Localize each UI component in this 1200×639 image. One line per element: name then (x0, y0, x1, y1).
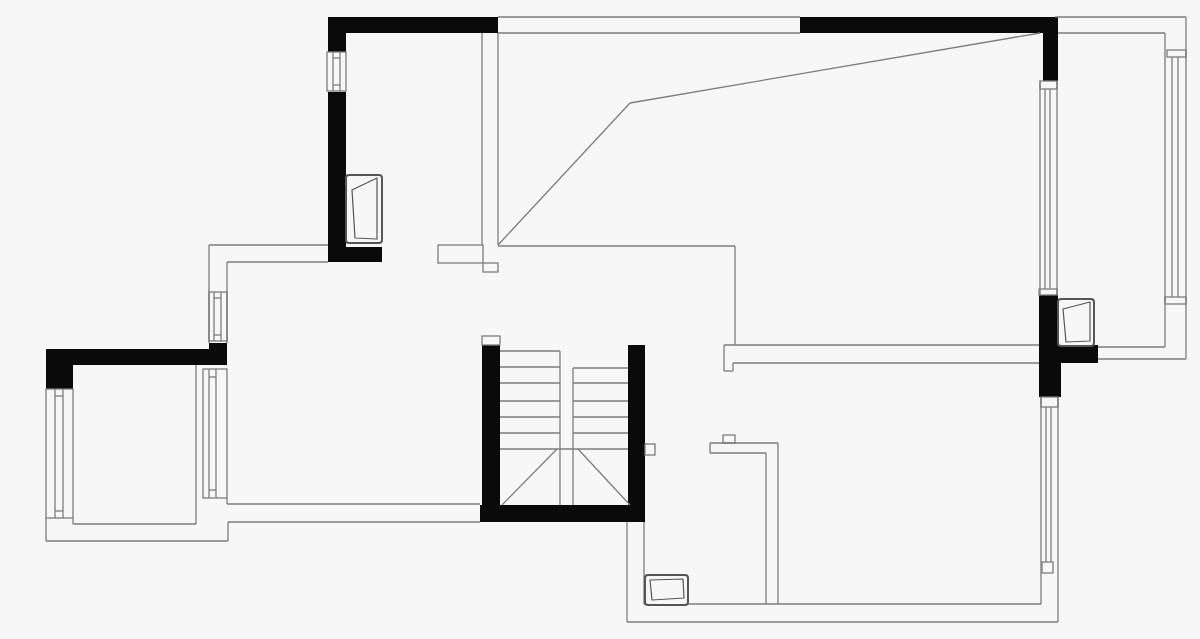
wall-segment (46, 365, 73, 389)
door-panel (1058, 299, 1094, 346)
wall-segment (328, 33, 346, 52)
floor-plan-canvas (0, 0, 1200, 639)
wall-segment (328, 92, 346, 247)
wall-segment (328, 17, 498, 33)
door-panel-fold (650, 579, 684, 600)
wall-segment (46, 349, 227, 365)
floor-plan-drawing (0, 0, 1200, 639)
wall-segment (1039, 363, 1061, 397)
door-panel (346, 175, 382, 243)
door-panel-fold (1063, 302, 1090, 342)
frame-box (1042, 562, 1053, 573)
wall-segment (1039, 345, 1098, 363)
wall-segment (1039, 295, 1058, 345)
frames-layer (46, 50, 1186, 573)
frame-box (203, 369, 227, 498)
frame-box (645, 444, 655, 455)
wall-segment (482, 345, 500, 505)
frame-box (1039, 289, 1057, 295)
plan-line (502, 449, 557, 505)
frame-box (482, 336, 500, 345)
wall-segment (209, 343, 227, 349)
frame-box (723, 435, 735, 443)
plan-line (578, 449, 630, 505)
wall-segment (800, 17, 1055, 33)
plan-line (630, 33, 1040, 103)
frame-box (46, 389, 73, 518)
wall-segment (628, 345, 645, 505)
frame-box (1165, 297, 1186, 304)
door-panels-layer (346, 175, 1094, 605)
door-panel (645, 575, 688, 605)
wall-segment (328, 247, 382, 262)
frame-box (1167, 50, 1186, 57)
frame-box (209, 292, 227, 341)
plan-line (498, 103, 630, 245)
frame-box (438, 245, 483, 263)
frame-box (483, 263, 498, 272)
wall-segment (480, 505, 645, 522)
frame-box (1041, 397, 1058, 407)
wall-segment (1043, 17, 1058, 81)
frame-box (1040, 81, 1057, 89)
